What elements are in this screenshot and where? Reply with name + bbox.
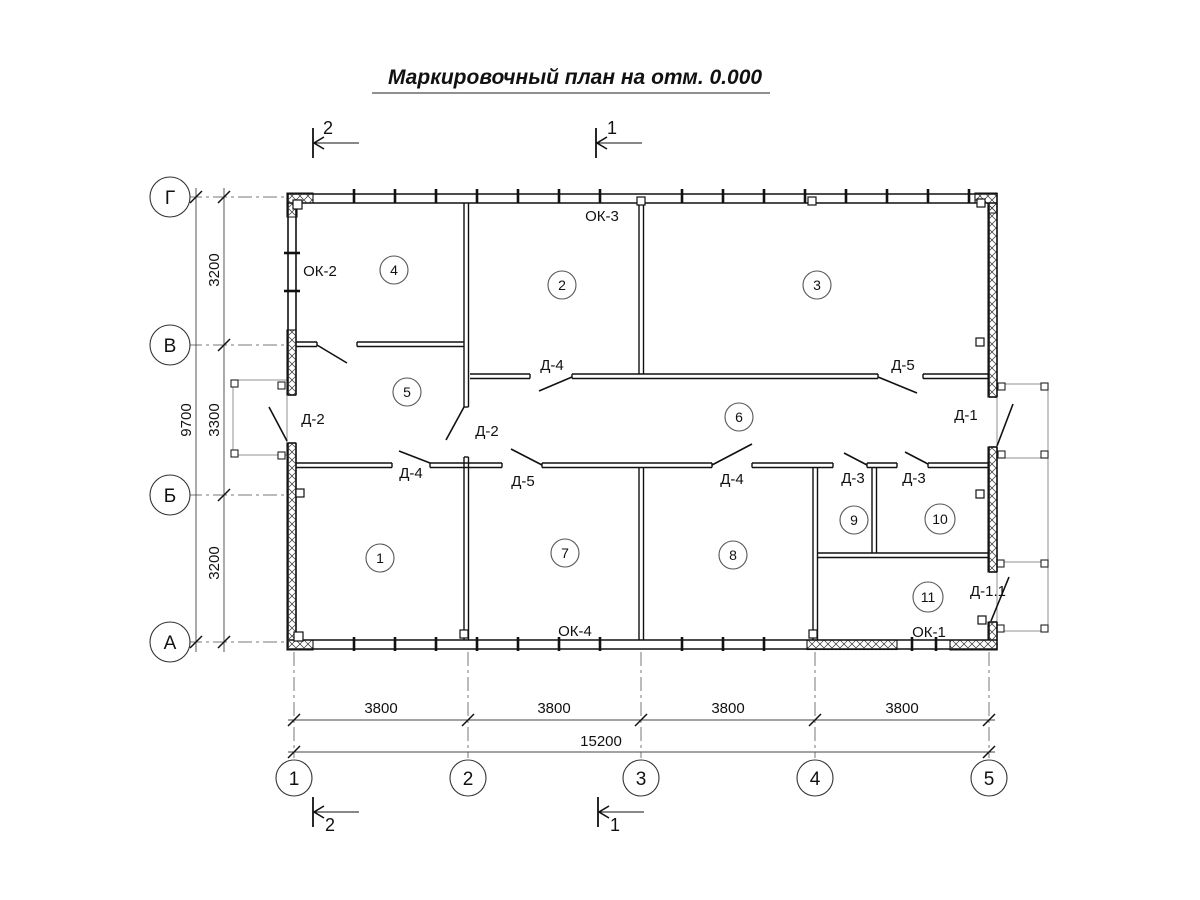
dim-left-seg-3: 3200	[206, 546, 223, 579]
section-mark-1-bottom: 1	[598, 797, 644, 835]
room-tag-10: 10	[925, 504, 955, 534]
room-tag-11: 11	[913, 582, 943, 612]
svg-text:4: 4	[810, 769, 821, 790]
door-leaf-d4-room1	[399, 451, 430, 463]
grid-bubble-row-b: Б	[150, 475, 190, 515]
dim-bottom-seg-1: 3800	[364, 700, 397, 717]
svg-text:10: 10	[932, 511, 948, 527]
porch-right-upper	[997, 384, 1048, 458]
door-leaf-d2-corridor	[446, 407, 464, 440]
grid-bubble-col-2: 2	[450, 760, 486, 796]
grid-bubble-col-5: 5	[971, 760, 1007, 796]
room-tag-3: 3	[803, 271, 831, 299]
dim-left-seg-1: 3200	[206, 253, 223, 286]
grid-bubble-row-g: Г	[150, 177, 190, 217]
svg-text:2: 2	[323, 118, 333, 138]
door-leaf-d3-room10	[905, 452, 928, 464]
svg-text:6: 6	[735, 409, 743, 425]
svg-text:1: 1	[610, 815, 620, 835]
door-leaf-d5-room3	[878, 377, 917, 393]
room-tag-1: 1	[366, 544, 394, 572]
svg-text:Г: Г	[165, 188, 175, 209]
porch-left	[233, 380, 287, 455]
door-leaf-d5-room7	[511, 449, 542, 465]
door-leaf-d4-room8	[712, 444, 752, 465]
door-label-d1-1: Д-1.1	[970, 583, 1006, 600]
window-label-ok1: ОК-1	[912, 624, 946, 641]
grid-bubble-row-v: В	[150, 325, 190, 365]
door-leaf-vestibule	[317, 345, 347, 363]
grid-bubbles: Г В Б А 1 2 3 4 5	[150, 177, 1007, 796]
section-marks: 2 1 2 1	[313, 118, 644, 835]
door-label-d4-room8: Д-4	[720, 471, 744, 488]
drawing-sheet: Маркировочный план на отм. 0.000	[0, 0, 1200, 900]
grid-bubble-row-a: А	[150, 622, 190, 662]
grid-bubble-col-4: 4	[797, 760, 833, 796]
axis-lines	[188, 197, 989, 758]
door-leaf-d4-room2	[539, 377, 572, 391]
room-tag-2: 2	[548, 271, 576, 299]
dim-bottom-total: 15200	[580, 733, 622, 750]
svg-text:1: 1	[607, 118, 617, 138]
drawing-title: Маркировочный план на отм. 0.000	[388, 66, 762, 89]
door-label-d2-corridor: Д-2	[475, 423, 499, 440]
room-tag-4: 4	[380, 256, 408, 284]
dim-left-total: 9700	[178, 403, 195, 436]
svg-text:5: 5	[984, 769, 995, 790]
dim-bottom-seg-3: 3800	[711, 700, 744, 717]
door-label-d4-room2: Д-4	[540, 357, 564, 374]
door-label-d4-room1: Д-4	[399, 465, 423, 482]
svg-text:3: 3	[813, 277, 821, 293]
window-label-ok3: ОК-3	[585, 208, 619, 225]
room-tags: 1 2 3 4 5 6 7 8 9 10 11	[366, 256, 955, 612]
dim-bottom-seg-4: 3800	[885, 700, 918, 717]
svg-text:11: 11	[921, 589, 936, 605]
svg-text:4: 4	[390, 262, 398, 278]
svg-text:В: В	[164, 336, 177, 357]
room-tag-8: 8	[719, 541, 747, 569]
section-mark-1-top: 1	[596, 118, 642, 158]
dim-left-seg-2: 3300	[206, 403, 223, 436]
room-tag-5: 5	[393, 378, 421, 406]
svg-text:9: 9	[850, 512, 858, 528]
svg-text:А: А	[164, 633, 177, 654]
window-label-ok2: ОК-2	[303, 263, 337, 280]
svg-text:2: 2	[325, 815, 335, 835]
floor-plan-canvas: Маркировочный план на отм. 0.000	[0, 0, 1200, 900]
door-label-d3-room10: Д-3	[902, 470, 926, 487]
door-label-d2-entrance: Д-2	[301, 411, 325, 428]
dim-bottom-seg-2: 3800	[537, 700, 570, 717]
svg-text:5: 5	[403, 384, 411, 400]
title-block: Маркировочный план на отм. 0.000	[372, 66, 770, 93]
door-leaf-d1	[997, 404, 1013, 446]
svg-text:Б: Б	[164, 486, 176, 507]
grid-bubble-col-3: 3	[623, 760, 659, 796]
door-label-d1: Д-1	[954, 407, 978, 424]
svg-text:8: 8	[729, 547, 737, 563]
room-tag-7: 7	[551, 539, 579, 567]
svg-text:7: 7	[561, 545, 569, 561]
door-leaf-entrance-d2	[269, 407, 287, 441]
svg-text:2: 2	[558, 277, 566, 293]
room-tag-6: 6	[725, 403, 753, 431]
room-tag-9: 9	[840, 506, 868, 534]
door-label-d5-room7: Д-5	[511, 473, 535, 490]
svg-text:1: 1	[376, 550, 384, 566]
svg-text:3: 3	[636, 769, 647, 790]
svg-text:2: 2	[463, 769, 474, 790]
section-mark-2-top: 2	[313, 118, 359, 158]
svg-text:1: 1	[289, 769, 300, 790]
window-label-ok4: ОК-4	[558, 623, 592, 640]
section-mark-2-bottom: 2	[313, 797, 359, 835]
door-leaf-d3-room9	[844, 453, 867, 465]
door-label-d5-room3: Д-5	[891, 357, 915, 374]
grid-bubble-col-1: 1	[276, 760, 312, 796]
door-label-d3-room9: Д-3	[841, 470, 865, 487]
